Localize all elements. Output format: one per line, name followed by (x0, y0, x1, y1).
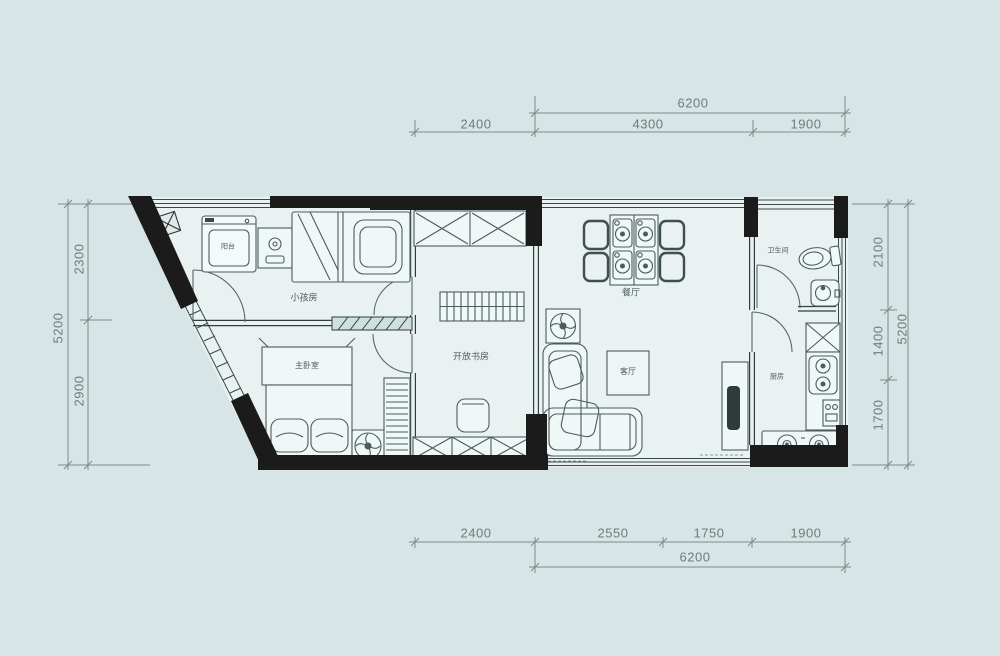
dim-right-seg-3: 1700 (872, 400, 885, 431)
dim-right-seg-2: 1400 (872, 326, 885, 357)
wardrobe (384, 378, 410, 466)
closet (414, 211, 526, 246)
dim-bottom-overall: 6200 (680, 551, 711, 564)
tv-cabinet (722, 362, 748, 450)
room-label-kids-room: 小孩房 (290, 294, 317, 303)
kitchen-sink-counter (806, 352, 840, 430)
dim-left-seg-2: 2900 (73, 376, 86, 407)
dim-right-seg-1: 2100 (872, 237, 885, 268)
floor-plan-page: 6200 2400 4300 1900 2400 2550 1750 1900 … (0, 0, 1000, 656)
room-label-bathroom: 卫生间 (768, 248, 789, 255)
dim-right-overall: 5200 (896, 314, 909, 345)
room-label-balcony: 阳台 (221, 244, 235, 251)
side-table (546, 309, 580, 343)
dim-bottom-seg-1: 2400 (461, 527, 492, 540)
dim-top-seg-2: 4300 (633, 118, 664, 131)
dim-left-overall: 5200 (52, 313, 65, 344)
floor-plan-drawing (0, 0, 1000, 656)
bathroom-sink (811, 280, 840, 306)
dining-table (610, 215, 658, 285)
room-label-living-room: 客厅 (620, 368, 636, 376)
nightstand (258, 228, 292, 268)
bookshelf (440, 292, 524, 321)
dim-bottom-seg-3: 1750 (694, 527, 725, 540)
room-label-dining-room: 餐厅 (622, 289, 640, 298)
room-label-kitchen: 厨房 (770, 374, 784, 381)
room-label-open-study: 开放书房 (453, 353, 489, 362)
dim-top-seg-3: 1900 (791, 118, 822, 131)
flue-shaft (806, 323, 840, 352)
room-label-master-bedroom: 主卧室 (295, 362, 319, 370)
double-bed (259, 338, 355, 456)
dim-top-overall: 6200 (678, 97, 709, 110)
dim-left-seg-1: 2300 (73, 244, 86, 275)
dim-top-seg-1: 2400 (461, 118, 492, 131)
dim-bottom-seg-4: 1900 (791, 527, 822, 540)
desk-chair (457, 399, 489, 432)
single-bed (292, 212, 410, 282)
dim-bottom-seg-2: 2550 (598, 527, 629, 540)
sliding-door (332, 317, 412, 330)
